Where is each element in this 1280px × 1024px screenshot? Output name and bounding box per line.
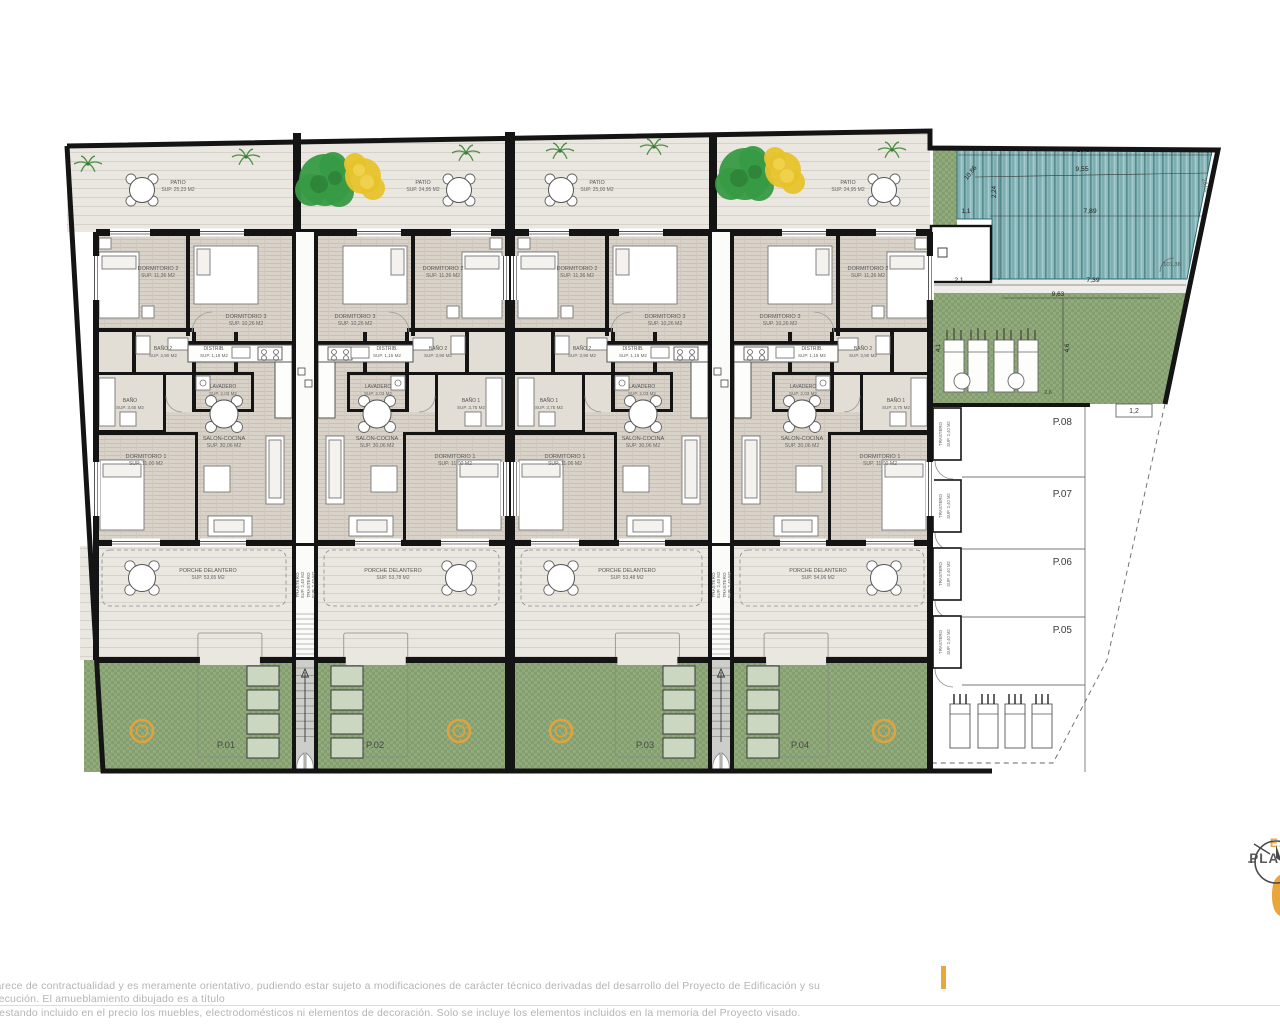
plan-root: P.08TRASTEROSUP. 2,40 M2P.07TRASTEROSUP.… <box>67 131 1218 772</box>
disclaimer-line2: o estando incluido en el precio los mueb… <box>0 1007 800 1019</box>
svg-text:SUP. 30,06 M2: SUP. 30,06 M2 <box>785 443 820 449</box>
svg-text:SUP. 2,03 M2: SUP. 2,03 M2 <box>789 391 817 396</box>
svg-text:DISTRIB.: DISTRIB. <box>622 346 643 352</box>
svg-text:SUP. 53,48 M2: SUP. 53,48 M2 <box>610 575 643 581</box>
svg-text:SUP. 2,40 M2: SUP. 2,40 M2 <box>946 493 951 519</box>
svg-text:BAÑO 1: BAÑO 1 <box>462 397 481 404</box>
svg-text:SUP. 11,36 M2: SUP. 11,36 M2 <box>426 273 460 279</box>
disclaimer-line1: carece de contractualidad y es meramente… <box>0 980 820 1006</box>
svg-text:SUP. 3,90 M2: SUP. 3,90 M2 <box>424 353 452 358</box>
svg-text:SUP. 1,15 M2: SUP. 1,15 M2 <box>619 353 647 358</box>
svg-text:SUP. 10,26 M2: SUP. 10,26 M2 <box>229 321 264 327</box>
bike-racks <box>950 694 1052 748</box>
svg-text:4,1: 4,1 <box>936 343 942 352</box>
svg-text:SUP. 24,95 M2: SUP. 24,95 M2 <box>831 187 864 193</box>
svg-text:BAÑO 2: BAÑO 2 <box>854 345 873 352</box>
svg-text:1,2: 1,2 <box>1129 408 1139 415</box>
svg-text:TRASTERO: TRASTERO <box>938 629 943 653</box>
tree-icon <box>715 146 805 201</box>
svg-text:PORCHE DELANTERO: PORCHE DELANTERO <box>179 568 237 574</box>
parking-trastero: TRASTEROSUP. 2,40 M2 <box>933 408 961 479</box>
svg-text:DISTRIB.: DISTRIB. <box>203 346 224 352</box>
svg-text:BAÑO 1: BAÑO 1 <box>540 397 559 404</box>
parking-space-label: P.05 <box>1053 625 1073 636</box>
parking-trastero: TRASTEROSUP. 2,40 M2 <box>933 480 961 551</box>
title-block: E:1 PLAN 0 <box>1230 832 1280 926</box>
svg-text:2,1: 2,1 <box>954 277 963 284</box>
svg-text:SUP. 53,65 M2: SUP. 53,65 M2 <box>191 575 224 581</box>
svg-text:SUP. 25,23 M2: SUP. 25,23 M2 <box>161 187 194 193</box>
svg-text:SUP. 30,06 M2: SUP. 30,06 M2 <box>626 443 661 449</box>
svg-text:SUP. 11,00 M2: SUP. 11,00 M2 <box>438 461 472 467</box>
svg-text:TRASTERO: TRASTERO <box>938 561 943 585</box>
unit-id-label: P.03 <box>636 740 654 751</box>
svg-text:BAÑO 2: BAÑO 2 <box>573 345 592 352</box>
svg-text:7,89: 7,89 <box>1083 208 1096 215</box>
svg-text:DORMITORIO 1: DORMITORIO 1 <box>860 454 901 460</box>
svg-text:SUP. 3,75 M2: SUP. 3,75 M2 <box>882 405 910 410</box>
svg-text:SALON-COCINA: SALON-COCINA <box>781 436 824 442</box>
svg-text:SUP. 54,06 M2: SUP. 54,06 M2 <box>801 575 834 581</box>
svg-text:9,63: 9,63 <box>1052 291 1065 298</box>
svg-text:SUP. 30,06 M2: SUP. 30,06 M2 <box>360 443 395 449</box>
svg-text:SUP. 3,65 M2: SUP. 3,65 M2 <box>116 405 144 410</box>
svg-text:SUP. 11,06 M2: SUP. 11,06 M2 <box>548 461 582 467</box>
accent-bar <box>941 966 946 989</box>
svg-text:PORCHE DELANTERO: PORCHE DELANTERO <box>364 568 422 574</box>
disclaimer-text: carece de contractualidad y es meramente… <box>0 980 820 1021</box>
svg-text:SUP. 2,03 M2: SUP. 2,03 M2 <box>364 391 392 396</box>
svg-text:DORMITORIO 3: DORMITORIO 3 <box>760 314 801 320</box>
svg-text:PATIO: PATIO <box>589 180 604 186</box>
svg-text:2,24: 2,24 <box>991 185 998 198</box>
svg-text:SUP. 2,40 M2: SUP. 2,40 M2 <box>946 629 951 655</box>
svg-text:DISTRIB.: DISTRIB. <box>801 346 822 352</box>
svg-text:SUP. 3,90 M2: SUP. 3,90 M2 <box>568 353 596 358</box>
svg-text:101,36: 101,36 <box>1163 262 1181 268</box>
svg-text:SUP. 2,40 M2: SUP. 2,40 M2 <box>727 571 732 598</box>
footer-rule <box>0 1005 1280 1006</box>
svg-text:SUP. 2,40 M2: SUP. 2,40 M2 <box>946 561 951 587</box>
parking-space-label: P.06 <box>1053 557 1073 568</box>
svg-text:SUP. 10,26 M2: SUP. 10,26 M2 <box>648 321 683 327</box>
svg-text:SUP. 2,40 M2: SUP. 2,40 M2 <box>716 571 721 598</box>
svg-text:SUP. 3,75 M2: SUP. 3,75 M2 <box>457 405 485 410</box>
svg-text:DISTRIB.: DISTRIB. <box>376 346 397 352</box>
svg-text:DORMITORIO 2: DORMITORIO 2 <box>423 266 464 272</box>
svg-text:SUP. 3,90 M2: SUP. 3,90 M2 <box>149 353 177 358</box>
svg-text:SUP. 2,40 M2: SUP. 2,40 M2 <box>300 571 305 598</box>
svg-text:SALON-COCINA: SALON-COCINA <box>356 436 399 442</box>
svg-text:SUP. 24,95 M2: SUP. 24,95 M2 <box>406 187 439 193</box>
svg-text:DORMITORIO 1: DORMITORIO 1 <box>435 454 476 460</box>
parking-trastero: TRASTEROSUP. 2,40 M2 <box>933 616 961 687</box>
svg-text:DORMITORIO 2: DORMITORIO 2 <box>138 266 179 272</box>
unit-id-label: P.01 <box>217 740 235 751</box>
svg-text:LAVADERO: LAVADERO <box>365 384 392 390</box>
svg-text:DORMITORIO 1: DORMITORIO 1 <box>126 454 167 460</box>
svg-text:SUP. 11,00 M2: SUP. 11,00 M2 <box>863 461 897 467</box>
svg-text:BAÑO 2: BAÑO 2 <box>429 345 448 352</box>
svg-text:SALON-COCINA: SALON-COCINA <box>203 436 246 442</box>
svg-text:SUP. 3,90 M2: SUP. 3,90 M2 <box>849 353 877 358</box>
svg-text:PORCHE DELANTERO: PORCHE DELANTERO <box>598 568 656 574</box>
svg-text:SUP. 10,26 M2: SUP. 10,26 M2 <box>763 321 798 327</box>
svg-text:SUP. 1,15 M2: SUP. 1,15 M2 <box>373 353 401 358</box>
svg-text:SUP. 53,78 M2: SUP. 53,78 M2 <box>376 575 409 581</box>
floor-plan: P.08TRASTEROSUP. 2,40 M2P.07TRASTEROSUP.… <box>0 0 1280 1024</box>
parking-gap-dim: 1,2 <box>1116 404 1152 417</box>
north-compass-icon <box>1230 832 1280 888</box>
tree-icon <box>295 152 385 207</box>
svg-text:SUP. 25,00 M2: SUP. 25,00 M2 <box>580 187 613 193</box>
svg-text:SUP. 10,26 M2: SUP. 10,26 M2 <box>338 321 373 327</box>
svg-text:TRASTERO: TRASTERO <box>938 493 943 517</box>
svg-text:DORMITORIO 3: DORMITORIO 3 <box>335 314 376 320</box>
svg-text:SUP. 1,15 M2: SUP. 1,15 M2 <box>200 353 228 358</box>
svg-text:4,6: 4,6 <box>1064 343 1071 352</box>
svg-text:DORMITORIO 2: DORMITORIO 2 <box>848 266 889 272</box>
svg-text:PATIO: PATIO <box>415 180 430 186</box>
svg-text:SUP. 30,06 M2: SUP. 30,06 M2 <box>207 443 242 449</box>
svg-text:2,6: 2,6 <box>1044 390 1052 396</box>
svg-text:SUP. 11,36 M2: SUP. 11,36 M2 <box>851 273 885 279</box>
svg-text:PATIO: PATIO <box>170 180 185 186</box>
svg-text:7,39: 7,39 <box>1086 277 1099 284</box>
parking-space-label: P.08 <box>1053 417 1073 428</box>
svg-text:LAVADERO: LAVADERO <box>790 384 817 390</box>
svg-text:SUP. 2,40 M2: SUP. 2,40 M2 <box>311 571 316 598</box>
unit-id-label: P.04 <box>791 740 809 751</box>
pool-and-parking-zone: P.08TRASTEROSUP. 2,40 M2P.07TRASTEROSUP.… <box>930 147 1212 772</box>
svg-text:DORMITORIO 3: DORMITORIO 3 <box>226 314 267 320</box>
svg-text:9,55: 9,55 <box>1075 166 1088 173</box>
svg-text:SALON-COCINA: SALON-COCINA <box>622 436 665 442</box>
svg-text:BAÑO 1: BAÑO 1 <box>887 397 906 404</box>
svg-text:SUP. 1,15 M2: SUP. 1,15 M2 <box>798 353 826 358</box>
stairwell-2: TRASTEROSUP. 2,40 M2TRASTEROSUP. 2,40 M2 <box>708 232 734 772</box>
svg-text:1,1: 1,1 <box>962 208 971 215</box>
svg-text:PATIO: PATIO <box>840 180 855 186</box>
svg-text:SUP. 2,03 M2: SUP. 2,03 M2 <box>628 391 656 396</box>
svg-text:DORMITORIO 2: DORMITORIO 2 <box>557 266 598 272</box>
svg-text:SUP. 2,40 M2: SUP. 2,40 M2 <box>946 421 951 447</box>
stairwell-1: TRASTEROSUP. 2,40 M2TRASTEROSUP. 2,40 M2 <box>292 232 318 772</box>
svg-text:BAÑO: BAÑO <box>123 397 137 404</box>
svg-text:SUP. 3,75 M2: SUP. 3,75 M2 <box>535 405 563 410</box>
parking-space-label: P.07 <box>1053 489 1073 500</box>
svg-text:SUP. 11,36 M2: SUP. 11,36 M2 <box>141 273 175 279</box>
svg-text:SUP. 2,03 M2: SUP. 2,03 M2 <box>209 391 237 396</box>
svg-text:BAÑO 2: BAÑO 2 <box>154 345 173 352</box>
pool-room <box>931 226 991 282</box>
page: P.08TRASTEROSUP. 2,40 M2P.07TRASTEROSUP.… <box>0 0 1280 1024</box>
parking-trastero: TRASTEROSUP. 2,40 M2 <box>933 548 961 619</box>
svg-text:SUP. 11,00 M2: SUP. 11,00 M2 <box>129 461 163 467</box>
svg-text:LAVADERO: LAVADERO <box>210 384 237 390</box>
unit-id-label: P.02 <box>366 740 384 751</box>
svg-text:SUP. 11,36 M2: SUP. 11,36 M2 <box>560 273 594 279</box>
svg-text:DORMITORIO 1: DORMITORIO 1 <box>545 454 586 460</box>
svg-text:LAVADERO: LAVADERO <box>629 384 656 390</box>
svg-text:DORMITORIO 3: DORMITORIO 3 <box>645 314 686 320</box>
svg-text:TRASTERO: TRASTERO <box>938 421 943 445</box>
svg-text:PORCHE DELANTERO: PORCHE DELANTERO <box>789 568 847 574</box>
